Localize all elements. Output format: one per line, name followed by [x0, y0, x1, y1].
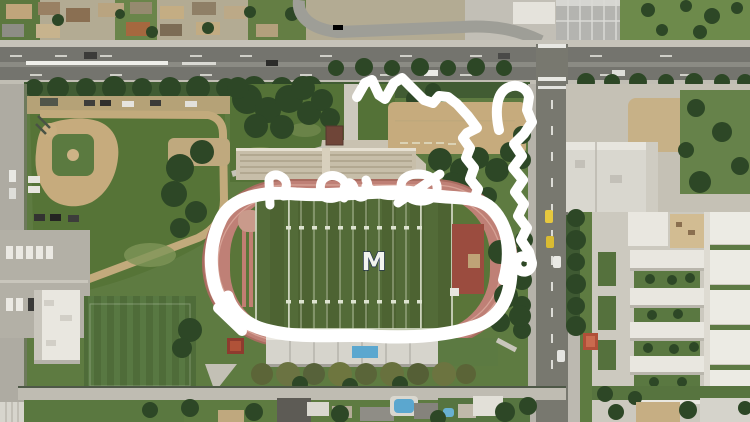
swimming-pool — [394, 399, 414, 413]
field-center-logo: M — [362, 247, 387, 276]
yellow-car — [545, 210, 553, 223]
satellite-image[interactable]: M — [0, 0, 750, 422]
dry-grass-patch — [124, 243, 176, 267]
car — [266, 60, 278, 66]
pitchers-mound — [67, 149, 79, 161]
industrial-roof-northeast — [556, 0, 750, 44]
east-plaza — [566, 84, 750, 212]
sand-courtyard — [670, 214, 704, 248]
median-stripe — [26, 61, 168, 65]
blue-tarp — [352, 346, 378, 358]
small-building — [326, 126, 343, 145]
football-field: M — [256, 197, 452, 329]
campus-building-west — [34, 290, 80, 364]
car — [84, 52, 97, 59]
car — [553, 256, 561, 268]
aerial-map-canvas: M — [0, 0, 750, 422]
car — [498, 53, 510, 59]
car — [557, 350, 565, 362]
yellow-car — [546, 236, 554, 248]
school-buildings-east — [566, 209, 750, 422]
